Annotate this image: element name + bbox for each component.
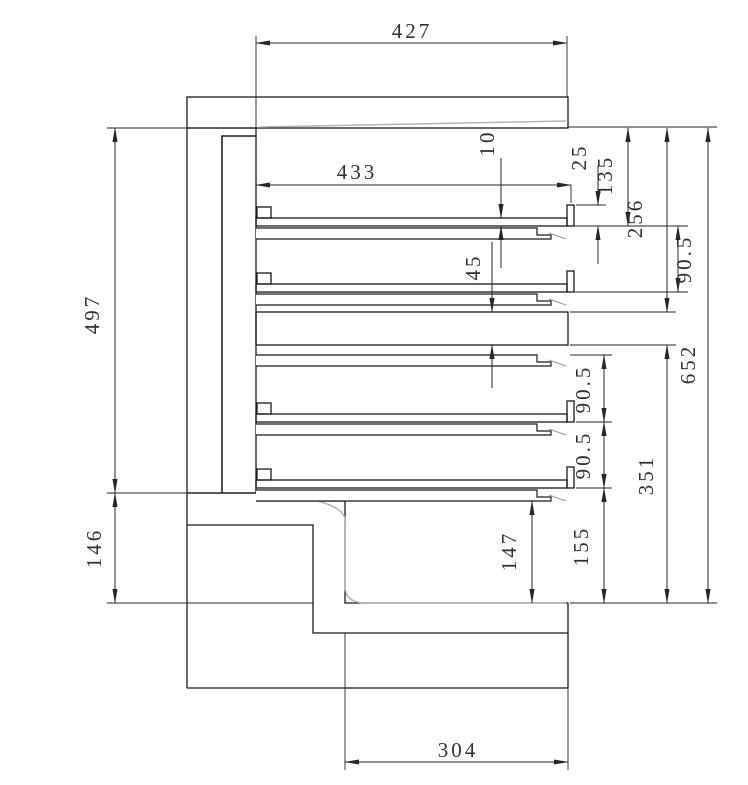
divider-tray [256,355,566,366]
dim-label-427: 427 [392,19,433,43]
middle-divider-hatch [256,312,568,345]
shelf-plate-2 [256,284,567,292]
dimension-labels: 427 433 10 45 25 135 90.5 256 652 497 14… [80,19,700,762]
dim-label-90-lower2: 90.5 [571,431,595,480]
shelf-assembly-4 [256,467,574,501]
section-drawing: 427 433 10 45 25 135 90.5 256 652 497 14… [0,0,748,785]
dim-label-90-upper: 90.5 [672,235,696,284]
dim-label-146: 146 [82,528,106,569]
shelf-tray-3-mask [256,424,551,435]
dim-label-10: 10 [475,130,499,157]
shelf-plate-1 [256,218,567,226]
extension-lines [107,36,717,770]
ceiling-ghost-line [260,121,566,127]
dimension-lines [115,43,708,762]
dim-label-497: 497 [80,294,104,335]
dim-label-25: 25 [567,144,591,171]
shelf-assembly-3 [256,401,574,435]
shelf-block-1 [257,207,271,218]
shelf-assemblies [256,205,574,501]
dim-label-135: 135 [593,155,617,196]
shelf-tray-2-mask [256,294,551,305]
top-band-hatch [187,97,568,128]
dim-label-351: 351 [634,455,658,496]
dim-label-155: 155 [569,526,593,567]
dim-label-304: 304 [438,738,479,762]
shelf-lip-1 [567,205,574,226]
shelf-tray-4-mask [256,490,551,501]
shelf-block-3 [257,403,271,414]
dim-label-433: 433 [337,160,378,184]
shelf-plate-4 [256,480,567,488]
shelf-assembly-2 [256,271,574,305]
divider-tray-mask [256,355,551,366]
hatched-structure [187,97,568,688]
dim-label-45: 45 [461,254,485,281]
shelf-plate-3 [256,414,567,422]
shelf-block-4 [257,469,271,480]
dim-label-147: 147 [497,531,521,572]
dim-label-90-lower1: 90.5 [571,365,595,414]
shelf-lip-2 [567,271,574,292]
dim-label-256: 256 [623,198,647,239]
shelf-tray-1-mask [256,228,551,239]
inner-liner-hatch [222,136,256,493]
shelf-block-2 [257,273,271,284]
shelf-assembly-1 [256,205,574,239]
dim-label-652: 652 [676,344,700,385]
drawing-canvas: 427 433 10 45 25 135 90.5 256 652 497 14… [0,0,748,785]
